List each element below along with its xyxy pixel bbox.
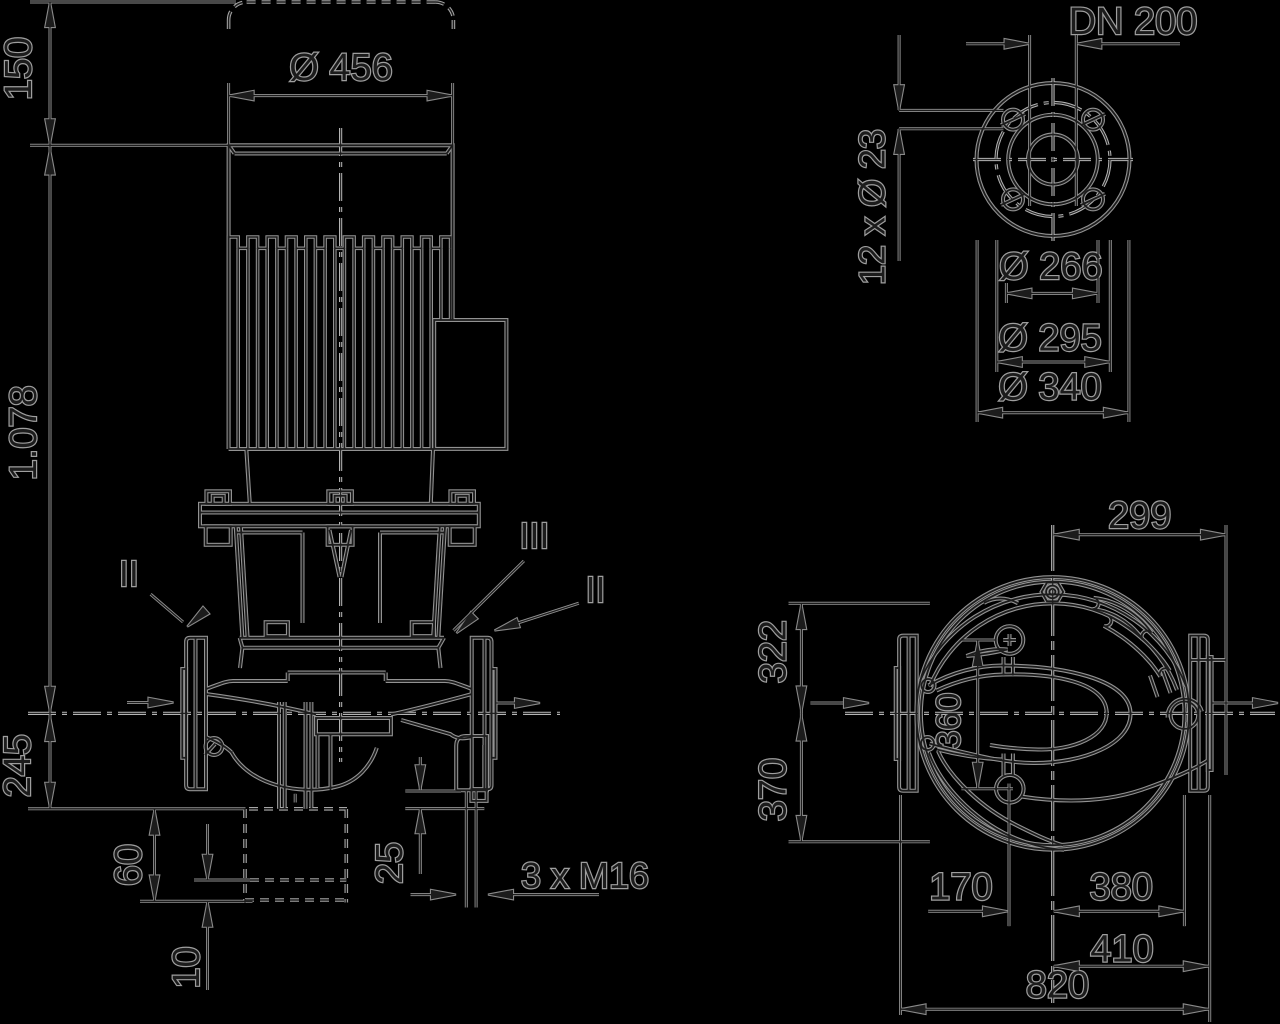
- svg-text:820: 820: [1026, 964, 1089, 1006]
- svg-text:Ø 295: Ø 295: [998, 317, 1102, 359]
- svg-text:360: 360: [930, 693, 968, 750]
- svg-text:380: 380: [1089, 866, 1152, 908]
- svg-text:245: 245: [0, 734, 39, 797]
- svg-text:170: 170: [929, 866, 992, 908]
- svg-text:10: 10: [166, 946, 208, 988]
- svg-text:3 x M16: 3 x M16: [521, 855, 649, 896]
- svg-text:III: III: [519, 515, 549, 556]
- svg-text:Ø 340: Ø 340: [998, 367, 1102, 409]
- svg-text:150: 150: [0, 37, 40, 100]
- svg-text:410: 410: [1090, 929, 1153, 971]
- svg-text:DN 200: DN 200: [1069, 1, 1198, 43]
- svg-text:322: 322: [753, 620, 795, 683]
- svg-text:1.078: 1.078: [3, 385, 45, 480]
- svg-text:II: II: [585, 569, 605, 610]
- svg-text:II: II: [119, 553, 139, 594]
- svg-text:Ø 266: Ø 266: [999, 246, 1103, 288]
- svg-text:25: 25: [369, 842, 411, 884]
- svg-text:60: 60: [108, 844, 150, 886]
- svg-text:12 x Ø 23: 12 x Ø 23: [852, 129, 893, 285]
- svg-text:Ø 456: Ø 456: [289, 47, 393, 89]
- svg-text:370: 370: [753, 758, 795, 821]
- svg-text:299: 299: [1108, 495, 1171, 537]
